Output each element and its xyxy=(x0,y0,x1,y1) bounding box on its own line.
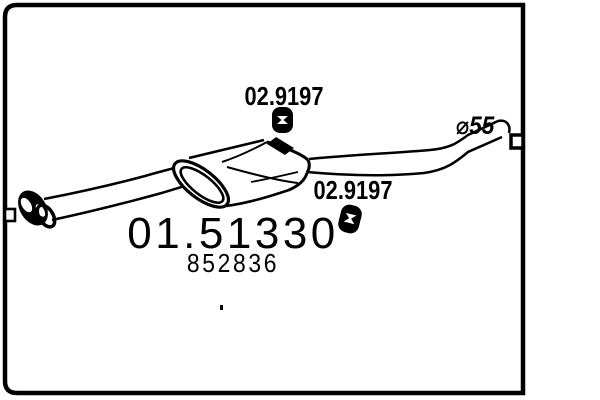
secondary-part-number: 852836 xyxy=(187,250,279,276)
muffler-body xyxy=(166,137,309,215)
inlet-flex-joint xyxy=(12,185,58,231)
exhaust-catalog-diagram: 02.9197 02.9197 ⌀55 01.51330 852836 xyxy=(0,0,600,400)
mount-part-number-top: 02.9197 xyxy=(245,83,324,109)
mount-part-number-middle: 02.9197 xyxy=(314,177,393,203)
pipe-diameter-label: ⌀55 xyxy=(456,114,495,139)
hanger-bracket xyxy=(267,137,294,155)
inlet-connector-square xyxy=(5,209,15,221)
exhaust-drawing-svg xyxy=(0,0,600,400)
print-speck xyxy=(220,305,223,310)
rubber-mount-icon xyxy=(336,203,363,235)
outlet-connector-square xyxy=(511,135,523,148)
